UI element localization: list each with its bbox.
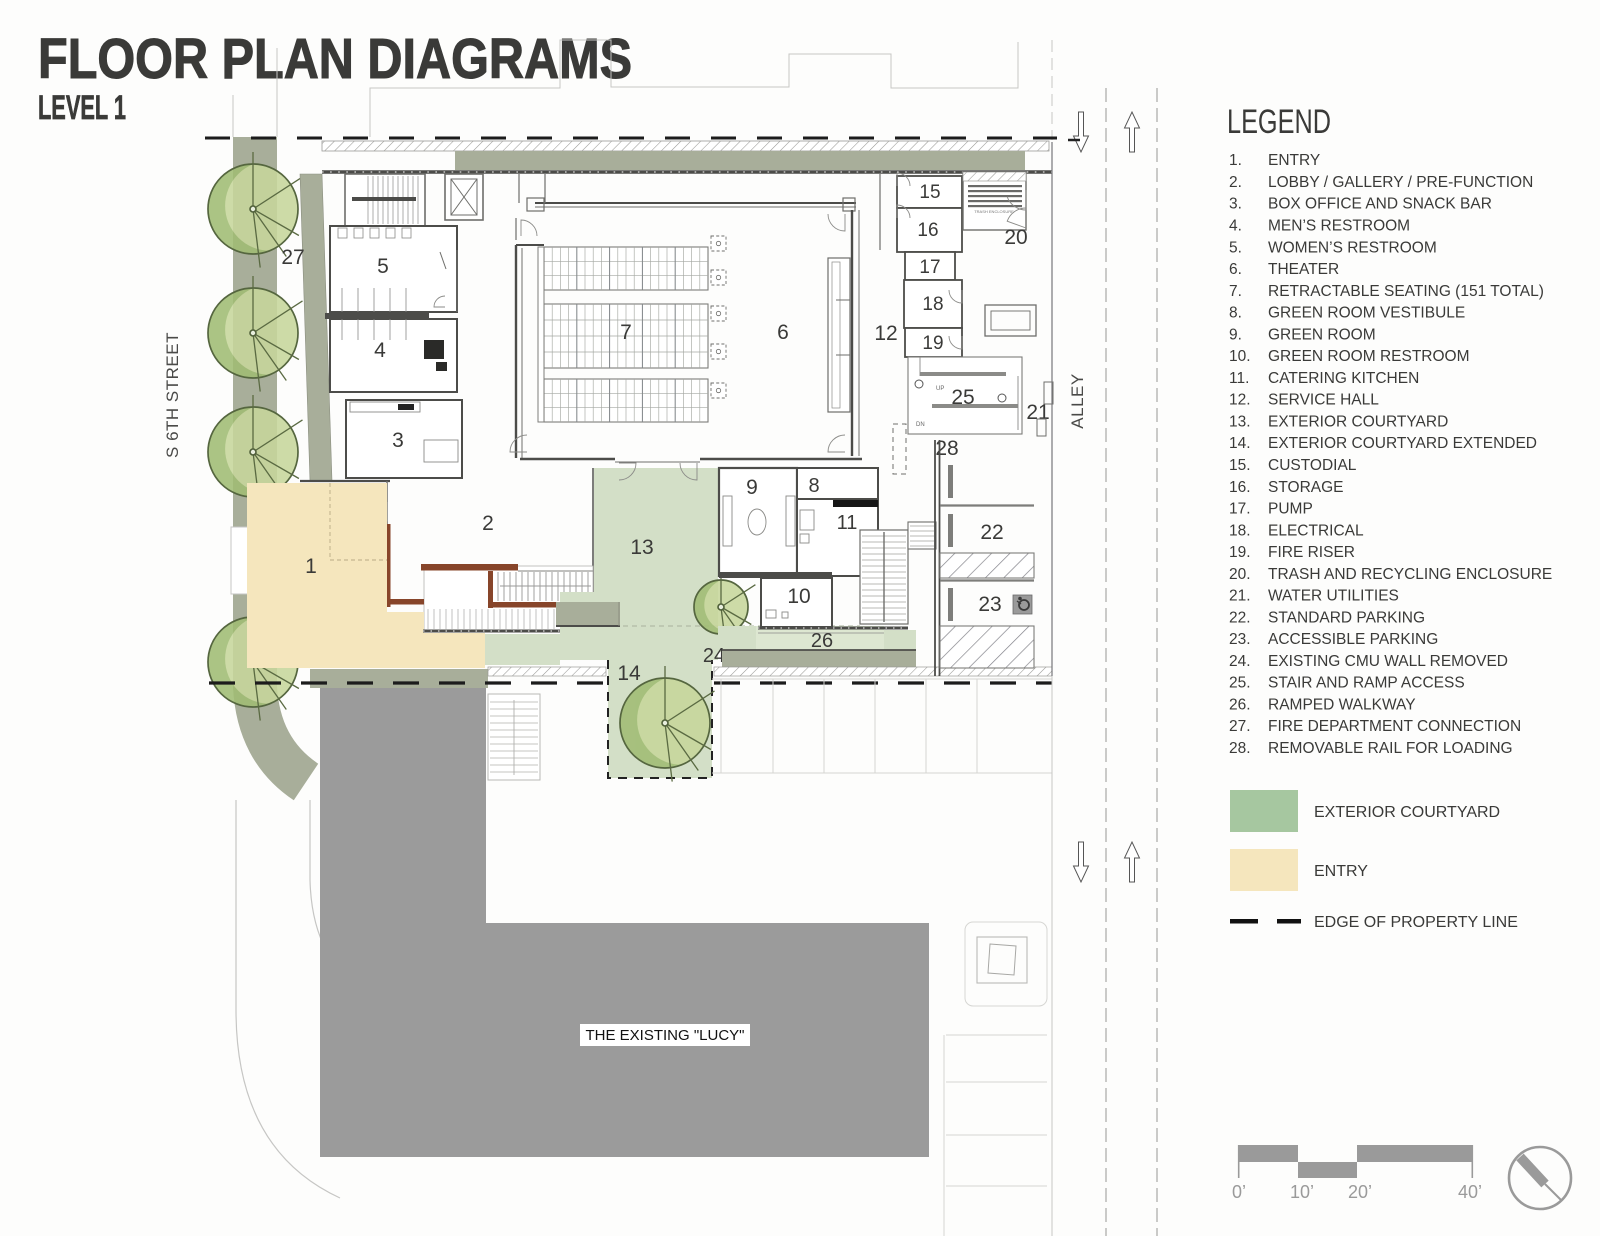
svg-text:13: 13 xyxy=(630,536,653,559)
svg-text:5: 5 xyxy=(377,255,389,278)
svg-text:23: 23 xyxy=(978,593,1001,616)
svg-text:9.: 9. xyxy=(1229,326,1242,343)
svg-text:11.: 11. xyxy=(1229,370,1249,387)
svg-text:LOBBY / GALLERY / PRE-FUNCTION: LOBBY / GALLERY / PRE-FUNCTION xyxy=(1268,174,1533,191)
svg-text:6.: 6. xyxy=(1229,261,1242,278)
svg-text:6: 6 xyxy=(777,321,789,344)
svg-text:20.: 20. xyxy=(1229,566,1251,583)
svg-text:13.: 13. xyxy=(1229,413,1251,430)
svg-text:S 6TH STREET: S 6TH STREET xyxy=(163,332,182,458)
svg-text:EDGE OF PROPERTY LINE: EDGE OF PROPERTY LINE xyxy=(1314,914,1518,931)
svg-text:15.: 15. xyxy=(1229,457,1251,474)
svg-text:24: 24 xyxy=(703,645,725,667)
svg-text:19.: 19. xyxy=(1229,544,1251,561)
svg-text:14.: 14. xyxy=(1229,435,1251,452)
svg-text:DN: DN xyxy=(916,422,925,428)
svg-text:FLOOR PLAN DIAGRAMS: FLOOR PLAN DIAGRAMS xyxy=(38,27,632,91)
svg-text:PUMP: PUMP xyxy=(1268,501,1313,518)
svg-text:10.: 10. xyxy=(1229,348,1251,365)
svg-text:ACCESSIBLE PARKING: ACCESSIBLE PARKING xyxy=(1268,631,1438,648)
svg-text:BOX OFFICE AND SNACK BAR: BOX OFFICE AND SNACK BAR xyxy=(1268,196,1492,213)
svg-text:THE EXISTING "LUCY": THE EXISTING "LUCY" xyxy=(585,1027,744,1044)
svg-text:25: 25 xyxy=(951,386,974,409)
svg-text:RETRACTABLE SEATING (151 TOTAL: RETRACTABLE SEATING (151 TOTAL) xyxy=(1268,283,1544,300)
svg-text:5.: 5. xyxy=(1229,239,1242,256)
svg-text:CATERING KITCHEN: CATERING KITCHEN xyxy=(1268,370,1419,387)
svg-text:EXTERIOR COURTYARD: EXTERIOR COURTYARD xyxy=(1268,413,1448,430)
svg-text:8: 8 xyxy=(808,475,819,497)
svg-text:17.: 17. xyxy=(1229,501,1251,518)
svg-text:ENTRY: ENTRY xyxy=(1268,152,1320,169)
svg-text:RAMPED WALKWAY: RAMPED WALKWAY xyxy=(1268,697,1416,714)
svg-text:20’: 20’ xyxy=(1348,1182,1372,1202)
svg-text:EXISTING CMU WALL REMOVED: EXISTING CMU WALL REMOVED xyxy=(1268,653,1508,670)
svg-text:STANDARD PARKING: STANDARD PARKING xyxy=(1268,609,1425,626)
svg-text:EXTERIOR COURTYARD: EXTERIOR COURTYARD xyxy=(1314,804,1500,821)
svg-text:CUSTODIAL: CUSTODIAL xyxy=(1268,457,1357,474)
svg-text:ENTRY: ENTRY xyxy=(1314,863,1368,880)
svg-text:LEGEND: LEGEND xyxy=(1227,103,1331,141)
svg-text:3: 3 xyxy=(392,429,404,452)
svg-text:21.: 21. xyxy=(1229,588,1251,605)
svg-text:7: 7 xyxy=(620,321,632,344)
svg-text:WOMEN’S RESTROOM: WOMEN’S RESTROOM xyxy=(1268,239,1437,256)
svg-text:STAIR AND RAMP ACCESS: STAIR AND RAMP ACCESS xyxy=(1268,675,1465,692)
svg-text:TRASH AND RECYCLING ENCLOSURE: TRASH AND RECYCLING ENCLOSURE xyxy=(1268,566,1552,583)
svg-text:THEATER: THEATER xyxy=(1268,261,1339,278)
svg-text:15: 15 xyxy=(919,182,940,203)
svg-text:25.: 25. xyxy=(1229,675,1251,692)
svg-text:8.: 8. xyxy=(1229,305,1242,322)
svg-text:WATER UTILITIES: WATER UTILITIES xyxy=(1268,588,1399,605)
svg-text:24.: 24. xyxy=(1229,653,1251,670)
svg-text:2: 2 xyxy=(482,512,494,535)
svg-text:9: 9 xyxy=(746,476,758,499)
svg-text:GREEN ROOM RESTROOM: GREEN ROOM RESTROOM xyxy=(1268,348,1470,365)
svg-text:22: 22 xyxy=(980,521,1003,544)
svg-text:4.: 4. xyxy=(1229,218,1242,235)
svg-text:1.: 1. xyxy=(1229,152,1242,169)
svg-text:19: 19 xyxy=(922,333,943,354)
svg-text:40’: 40’ xyxy=(1458,1182,1482,1202)
svg-text:27: 27 xyxy=(281,246,304,269)
svg-text:27.: 27. xyxy=(1229,718,1251,735)
svg-text:ELECTRICAL: ELECTRICAL xyxy=(1268,522,1364,539)
svg-text:LEVEL 1: LEVEL 1 xyxy=(38,89,126,127)
svg-text:18: 18 xyxy=(922,294,943,315)
svg-text:GREEN ROOM: GREEN ROOM xyxy=(1268,326,1376,343)
svg-text:23.: 23. xyxy=(1229,631,1251,648)
svg-text:26.: 26. xyxy=(1229,697,1251,714)
svg-text:STORAGE: STORAGE xyxy=(1268,479,1344,496)
svg-text:12: 12 xyxy=(874,322,897,345)
svg-text:28.: 28. xyxy=(1229,740,1251,757)
svg-text:3.: 3. xyxy=(1229,196,1242,213)
svg-text:17: 17 xyxy=(919,257,940,278)
svg-text:FIRE RISER: FIRE RISER xyxy=(1268,544,1355,561)
svg-text:EXTERIOR COURTYARD EXTENDED: EXTERIOR COURTYARD EXTENDED xyxy=(1268,435,1537,452)
svg-text:7.: 7. xyxy=(1229,283,1242,300)
svg-text:12.: 12. xyxy=(1229,392,1251,409)
svg-text:26: 26 xyxy=(811,630,833,652)
svg-text:SERVICE HALL: SERVICE HALL xyxy=(1268,392,1379,409)
svg-text:16.: 16. xyxy=(1229,479,1251,496)
svg-text:GREEN ROOM VESTIBULE: GREEN ROOM VESTIBULE xyxy=(1268,305,1465,322)
svg-text:18.: 18. xyxy=(1229,522,1251,539)
svg-text:FIRE DEPARTMENT CONNECTION: FIRE DEPARTMENT CONNECTION xyxy=(1268,718,1521,735)
svg-text:2.: 2. xyxy=(1229,174,1242,191)
svg-text:11: 11 xyxy=(837,512,858,534)
svg-text:22.: 22. xyxy=(1229,609,1251,626)
svg-text:0’: 0’ xyxy=(1232,1182,1246,1202)
svg-text:16: 16 xyxy=(917,220,938,241)
svg-text:4: 4 xyxy=(374,339,386,362)
svg-text:20: 20 xyxy=(1004,226,1027,249)
svg-text:REMOVABLE RAIL FOR LOADING: REMOVABLE RAIL FOR LOADING xyxy=(1268,740,1513,757)
svg-text:1: 1 xyxy=(305,555,317,578)
svg-text:14: 14 xyxy=(617,662,641,685)
svg-text:MEN’S RESTROOM: MEN’S RESTROOM xyxy=(1268,218,1410,235)
svg-text:ALLEY: ALLEY xyxy=(1068,373,1087,428)
svg-text:10’: 10’ xyxy=(1290,1182,1314,1202)
svg-text:TRASH ENCLOSURE: TRASH ENCLOSURE xyxy=(974,209,1014,214)
svg-text:10: 10 xyxy=(787,585,810,608)
svg-text:UP: UP xyxy=(936,386,944,392)
